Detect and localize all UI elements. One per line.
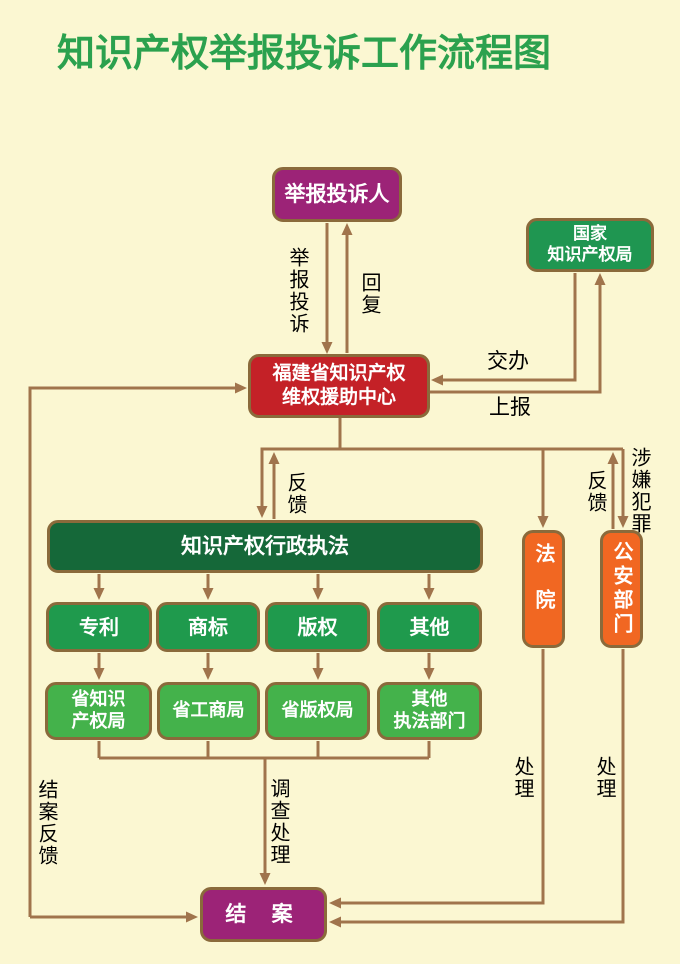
edge-case-feedback-up [30,388,243,917]
node-other: 其他 [377,602,482,652]
node-provincial-aic: 省工商局 [157,682,260,740]
node-court: 法院 [522,530,565,648]
flowchart-page: 知识产权举报投诉工作流程图 举报投诉人 国家 知识产权局 福建省知识产权 维权援… [0,0,680,964]
node-provincial-copyright-bureau: 省版权局 [265,682,370,740]
label-feedback-right: 反馈 [585,470,606,514]
edge-main-to-enforcement [262,449,623,514]
label-investigate-handle: 调查处理 [268,778,289,866]
label-assign: 交办 [487,350,529,372]
node-patent: 专利 [46,602,152,652]
node-fujian-ip-assistance-center: 福建省知识产权 维权援助中心 [248,354,430,418]
flow-connectors [0,0,680,964]
label-report-up: 上报 [489,396,531,418]
node-national-ip-office: 国家 知识产权局 [526,218,654,272]
node-reporter: 举报投诉人 [272,167,402,222]
page-title: 知识产权举报投诉工作流程图 [57,22,551,77]
node-copyright: 版权 [265,602,370,652]
label-case-closure-feedback: 结案反馈 [36,779,57,867]
node-trademark: 商标 [156,602,260,652]
label-handle-police: 处理 [594,756,615,800]
node-ip-admin-enforcement: 知识产权行政执法 [47,520,483,573]
node-case-closed: 结 案 [200,887,327,942]
label-reply: 回复 [359,272,380,316]
node-police: 公安部门 [600,530,643,648]
label-feedback-left: 反馈 [285,472,306,516]
label-suspected-crime: 涉嫌犯罪 [629,447,650,535]
label-report-complaint: 举报投诉 [287,247,308,335]
node-other-enforcement-depts: 其他 执法部门 [377,682,482,740]
node-provincial-ip-bureau: 省知识 产权局 [45,682,152,740]
label-handle-court: 处理 [512,756,533,800]
